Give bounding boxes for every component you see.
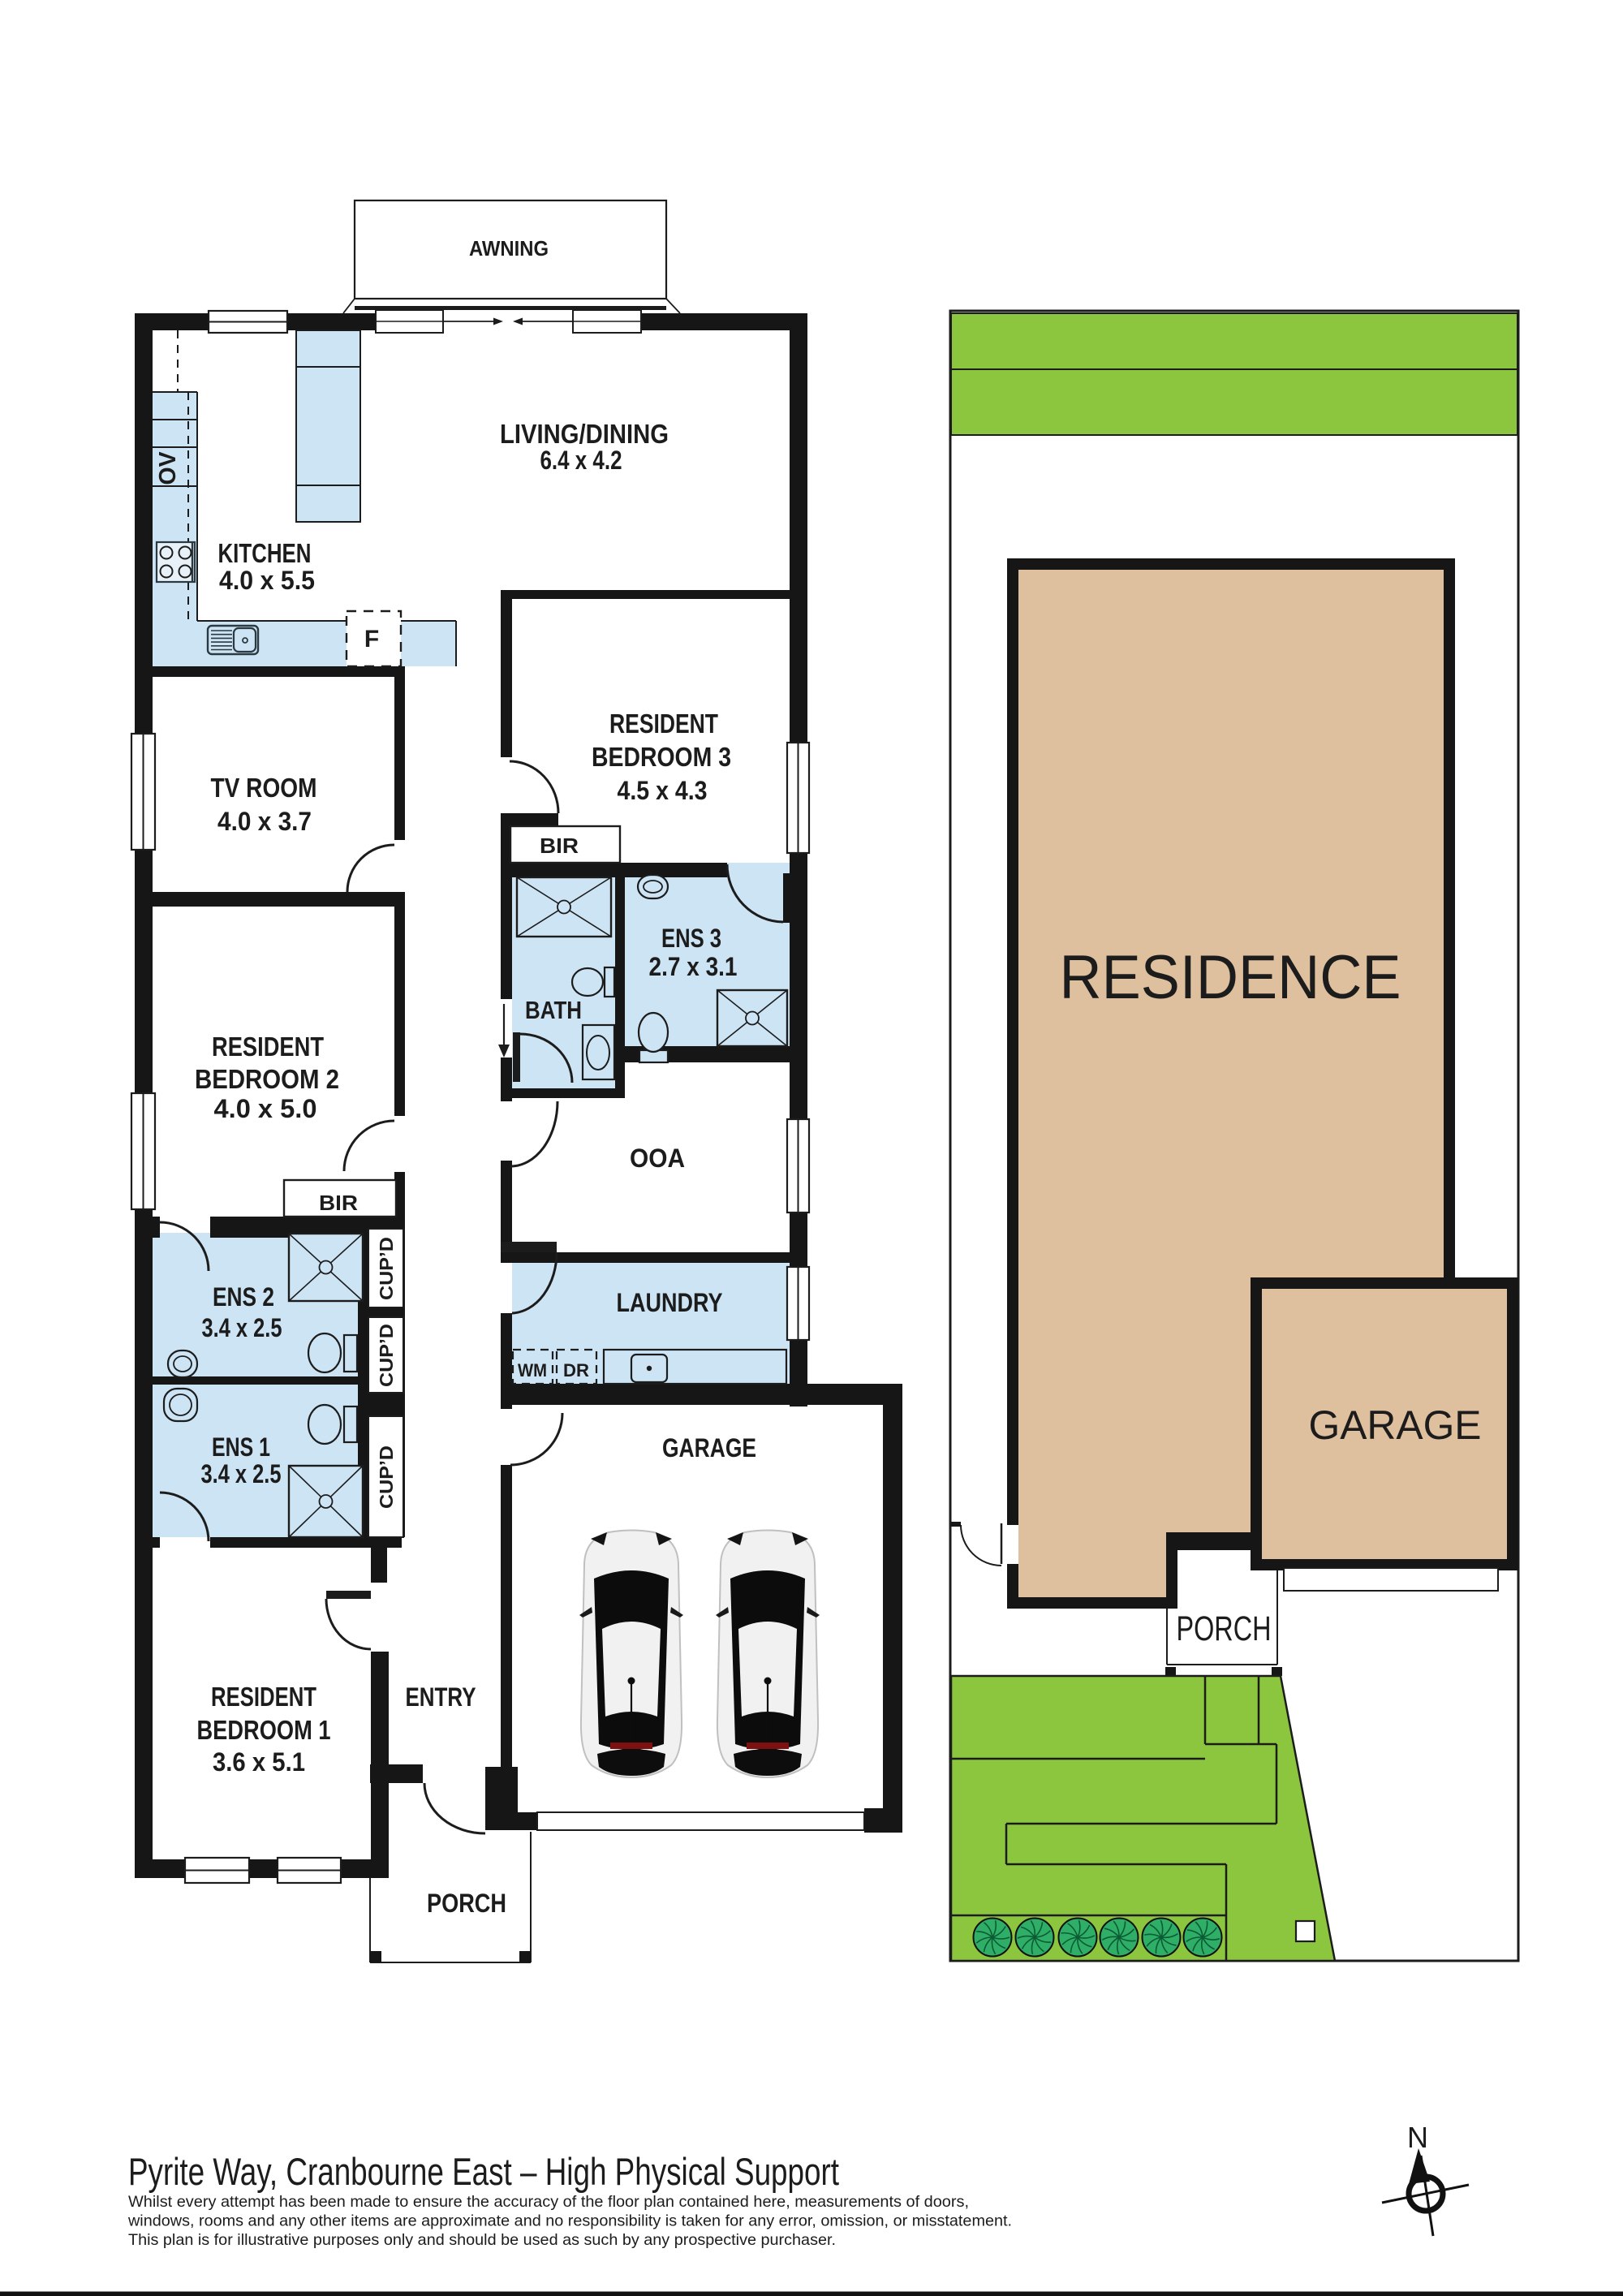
svg-text:windows, rooms and any other i: windows, rooms and any other items are a… bbox=[127, 2212, 1012, 2230]
svg-text:LAUNDRY: LAUNDRY bbox=[617, 1288, 723, 1317]
svg-text:ENTRY: ENTRY bbox=[406, 1682, 476, 1712]
svg-text:GARAGE: GARAGE bbox=[662, 1433, 756, 1462]
svg-text:3.4 x 2.5: 3.4 x 2.5 bbox=[201, 1459, 282, 1488]
svg-text:F: F bbox=[364, 626, 379, 653]
svg-text:BEDROOM 2: BEDROOM 2 bbox=[195, 1064, 339, 1094]
svg-text:3.4 x 2.5: 3.4 x 2.5 bbox=[202, 1313, 282, 1342]
svg-text:PORCH: PORCH bbox=[1177, 1609, 1272, 1648]
svg-text:KITCHEN: KITCHEN bbox=[218, 538, 312, 568]
svg-text:ENS 2: ENS 2 bbox=[213, 1282, 274, 1312]
svg-text:OV: OV bbox=[155, 451, 181, 485]
svg-text:OOA: OOA bbox=[630, 1144, 685, 1173]
svg-text:RESIDENCE: RESIDENCE bbox=[1060, 943, 1401, 1012]
svg-text:CUP’D: CUP’D bbox=[376, 1324, 397, 1387]
svg-text:N: N bbox=[1407, 2121, 1428, 2154]
svg-text:Pyrite Way, Cranbourne East –: Pyrite Way, Cranbourne East – High Physi… bbox=[128, 2150, 839, 2193]
svg-text:RESIDENT: RESIDENT bbox=[211, 1682, 316, 1712]
svg-text:4.0 x 5.0: 4.0 x 5.0 bbox=[214, 1094, 317, 1123]
svg-text:ENS 1: ENS 1 bbox=[212, 1432, 270, 1462]
svg-text:PORCH: PORCH bbox=[427, 1889, 506, 1918]
svg-text:Whilst every attempt has been: Whilst every attempt has been made to en… bbox=[128, 2193, 969, 2211]
svg-text:BATH: BATH bbox=[525, 996, 582, 1024]
svg-text:2.7 x 3.1: 2.7 x 3.1 bbox=[649, 952, 738, 981]
svg-text:6.4 x 4.2: 6.4 x 4.2 bbox=[540, 446, 622, 475]
svg-text:BIR: BIR bbox=[540, 834, 579, 858]
svg-text:3.6 x 5.1: 3.6 x 5.1 bbox=[213, 1747, 305, 1777]
svg-text:BIR: BIR bbox=[319, 1191, 358, 1215]
svg-text:TV ROOM: TV ROOM bbox=[211, 773, 317, 803]
svg-text:RESIDENT: RESIDENT bbox=[212, 1032, 324, 1062]
svg-text:4.0 x 5.5: 4.0 x 5.5 bbox=[219, 566, 315, 595]
svg-text:WM: WM bbox=[518, 1360, 547, 1381]
svg-text:This plan is for illustrative: This plan is for illustrative purposes o… bbox=[128, 2231, 836, 2249]
svg-text:ENS 3: ENS 3 bbox=[661, 924, 721, 953]
svg-text:DR: DR bbox=[563, 1360, 589, 1381]
svg-text:RESIDENT: RESIDENT bbox=[609, 709, 718, 739]
svg-text:4.5 x 4.3: 4.5 x 4.3 bbox=[618, 776, 708, 805]
svg-text:4.0 x 3.7: 4.0 x 3.7 bbox=[217, 807, 312, 836]
svg-text:CUP’D: CUP’D bbox=[376, 1237, 397, 1300]
svg-text:LIVING/DINING: LIVING/DINING bbox=[500, 419, 669, 449]
svg-text:CUP’D: CUP’D bbox=[376, 1445, 397, 1509]
svg-text:GARAGE: GARAGE bbox=[1309, 1402, 1482, 1448]
svg-text:BEDROOM 1: BEDROOM 1 bbox=[197, 1715, 331, 1745]
svg-text:AWNING: AWNING bbox=[469, 236, 549, 261]
svg-text:BEDROOM 3: BEDROOM 3 bbox=[592, 742, 731, 772]
